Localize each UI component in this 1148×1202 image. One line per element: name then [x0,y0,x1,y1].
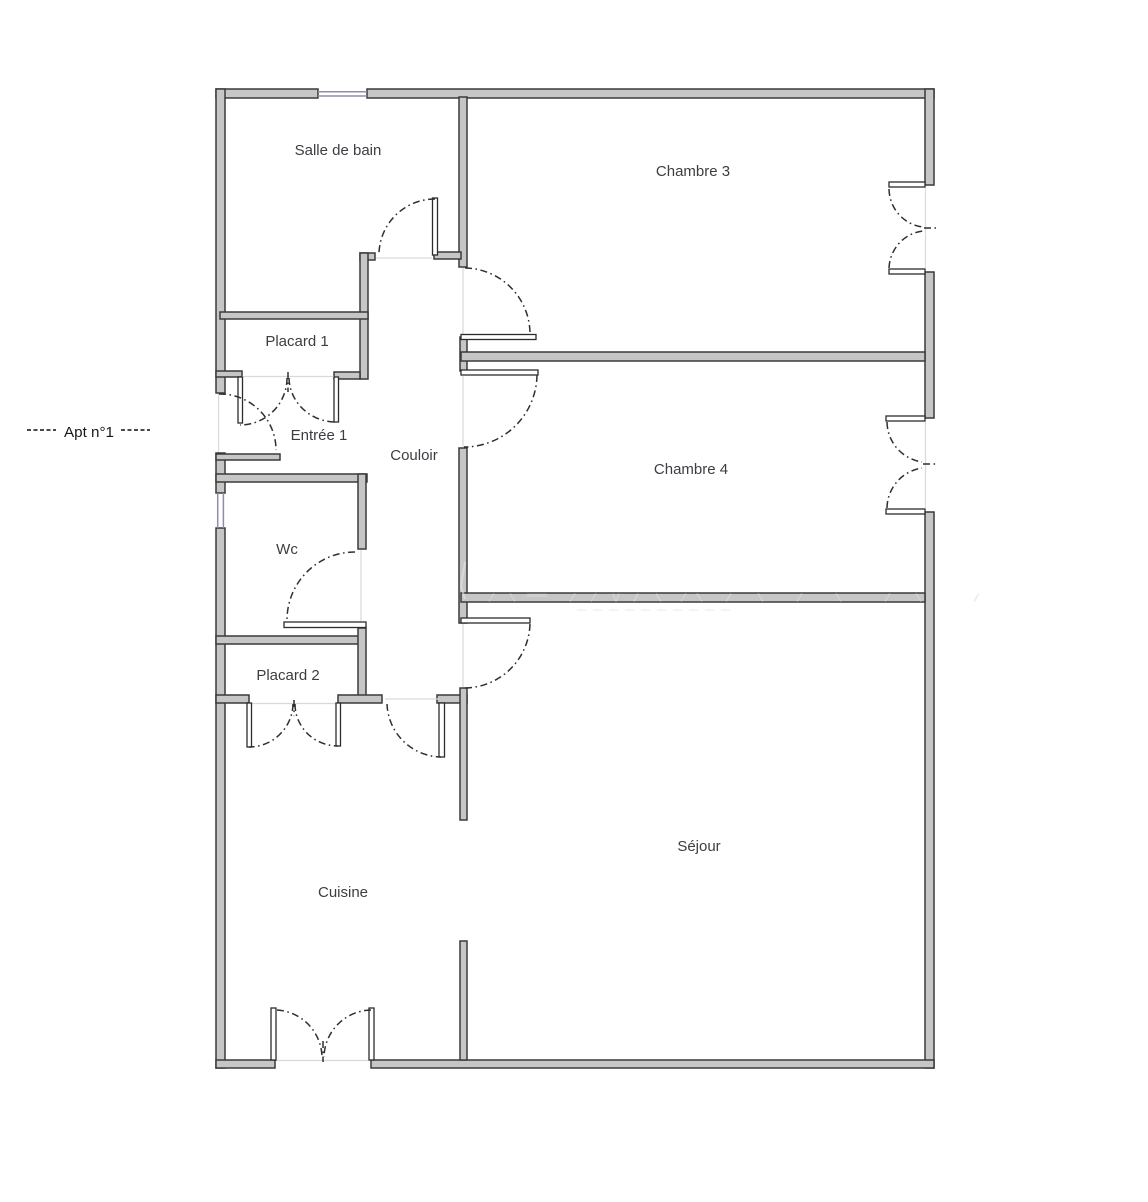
svg-text:Cuisine: Cuisine [318,884,368,901]
svg-text:Couloir: Couloir [390,447,438,464]
svg-text:Chambre 4: Chambre 4 [654,461,728,478]
svg-text:Wc: Wc [276,541,298,558]
svg-text:Chambre 3: Chambre 3 [656,163,730,180]
svg-text:Entrée 1: Entrée 1 [291,427,348,444]
svg-text:Séjour: Séjour [677,838,720,855]
svg-text:Apt n°1: Apt n°1 [64,424,114,441]
svg-text:Placard 2: Placard 2 [256,667,319,684]
svg-text:Salle de bain: Salle de bain [295,142,382,159]
svg-text:Placard 1: Placard 1 [265,333,328,350]
